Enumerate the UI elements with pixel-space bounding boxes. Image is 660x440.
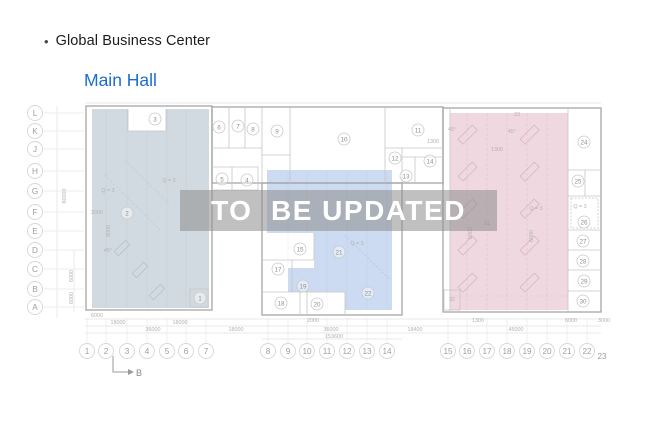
- section-marker-b: B: [113, 356, 142, 378]
- plan-annotation: 6000: [565, 318, 577, 324]
- room-number: 27: [579, 238, 587, 245]
- grid-col-label: 4: [145, 347, 150, 356]
- room-number: 18: [277, 300, 285, 307]
- plan-annotation: 18400: [408, 327, 423, 333]
- grid-col-label: 20: [542, 347, 552, 356]
- grid-col-label: 14: [382, 347, 392, 356]
- plan-annotation: 2000: [91, 210, 103, 216]
- plan-annotation: 3000: [598, 318, 610, 324]
- grid-row-label: H: [32, 167, 38, 176]
- grid-row-label: L: [33, 109, 38, 118]
- plan-annotation-vertical: 6000: [529, 230, 535, 242]
- plan-annotation: 1300: [491, 147, 503, 153]
- watermark-band: TO BE UPDATED: [180, 190, 497, 231]
- grid-col-label: 8: [266, 347, 271, 356]
- grid-col-label: 19: [522, 347, 532, 356]
- grid-col-label: 7: [204, 347, 209, 356]
- plan-annotation: Q = 3: [573, 204, 586, 210]
- room-number: 21: [335, 249, 343, 256]
- grid-row-label: B: [32, 285, 38, 294]
- grid-row-label: F: [32, 208, 37, 217]
- grid-col-label: 23: [597, 352, 607, 361]
- grid-col-label: 9: [286, 347, 291, 356]
- grid-row-label: A: [32, 303, 38, 312]
- room-number: 5: [220, 176, 224, 183]
- plan-annotation: 1300: [427, 139, 439, 145]
- plan-annotation: Q = 3: [350, 241, 363, 247]
- plan-annotation-vertical: 9000: [106, 225, 112, 237]
- grid-col-label: 21: [562, 347, 572, 356]
- room-number: 14: [426, 158, 434, 165]
- plan-annotation: 45000: [509, 327, 524, 333]
- grid-col-label: 17: [482, 347, 492, 356]
- room-number: 28: [579, 258, 587, 265]
- plan-annotation: 18000: [111, 320, 126, 326]
- room-number: 26: [580, 219, 588, 226]
- grid-row-label: G: [32, 187, 38, 196]
- plan-annotation: 23: [514, 112, 520, 118]
- watermark-text: TO BE UPDATED: [211, 195, 466, 227]
- room-number: 20: [313, 301, 321, 308]
- plan-annotation-vertical: 6000: [69, 270, 75, 282]
- plan-annotation: Q = 3: [529, 206, 542, 212]
- grid-col-label: 1: [85, 347, 90, 356]
- grid-col-label: 3: [125, 347, 130, 356]
- room-number: 19: [299, 283, 307, 290]
- grid-col-label: 15: [443, 347, 453, 356]
- plan-annotation: 6000: [91, 313, 103, 319]
- room-number: 4: [245, 177, 249, 184]
- room-number: 24: [580, 139, 588, 146]
- grid-col-label: 16: [462, 347, 472, 356]
- grid-col-label: 12: [342, 347, 352, 356]
- room-number: 6: [217, 124, 221, 131]
- plan-annotation: 36000: [146, 327, 161, 333]
- grid-row-label: J: [33, 145, 37, 154]
- plan-annotation: Q = 3: [101, 188, 114, 194]
- plan-annotation: 2000: [307, 318, 319, 324]
- grid-row-label: D: [32, 246, 38, 255]
- room-number: 13: [402, 173, 410, 180]
- grid-col-label: 10: [302, 347, 312, 356]
- room-number: 7: [236, 123, 240, 130]
- grid-row-label: C: [32, 265, 38, 274]
- room-number: 12: [391, 155, 399, 162]
- grid-col-label: 18: [502, 347, 512, 356]
- room-number: 10: [340, 136, 348, 143]
- room-number: 3: [153, 116, 157, 123]
- plan-annotation: 18000: [173, 320, 188, 326]
- plan-annotation: Q = 3: [162, 178, 175, 184]
- room-number: 2: [125, 210, 129, 217]
- room-number: 30: [579, 298, 587, 305]
- grid-col-label: 2: [104, 347, 109, 356]
- room-number: 17: [274, 266, 282, 273]
- plan-annotation: 45°: [508, 129, 516, 135]
- grid-col-label: 11: [323, 347, 332, 356]
- room-number: 25: [574, 178, 582, 185]
- grid-row-label: E: [32, 227, 38, 236]
- plan-annotation: 1300: [472, 318, 484, 324]
- plan-annotation: 45°: [448, 127, 456, 133]
- plan-annotation-vertical: 60000: [62, 189, 68, 204]
- grid-col-label: 6: [184, 347, 189, 356]
- slide-page: • Global Business Center Main Hall: [0, 0, 660, 440]
- room-number: 8: [251, 126, 255, 133]
- grid-col-label: 22: [582, 347, 592, 356]
- grid-col-label: 13: [362, 347, 372, 356]
- room-number: 11: [415, 127, 422, 134]
- room-number: 15: [296, 246, 304, 253]
- plan-annotation: 36000: [324, 327, 339, 333]
- room-number: 22: [364, 290, 372, 297]
- plan-annotation-vertical: 6000: [69, 292, 75, 304]
- room-number: 1: [198, 295, 202, 302]
- grid-col-label: 5: [165, 347, 170, 356]
- section-marker-label: B: [136, 368, 142, 378]
- plan-annotation: 153600: [325, 334, 343, 340]
- plan-annotation: 18000: [229, 327, 244, 333]
- plan-annotation: 32: [449, 297, 455, 303]
- plan-annotation: 45°: [104, 248, 112, 254]
- room-number: 29: [580, 278, 588, 285]
- room-number: 9: [275, 128, 279, 135]
- grid-row-label: K: [32, 127, 38, 136]
